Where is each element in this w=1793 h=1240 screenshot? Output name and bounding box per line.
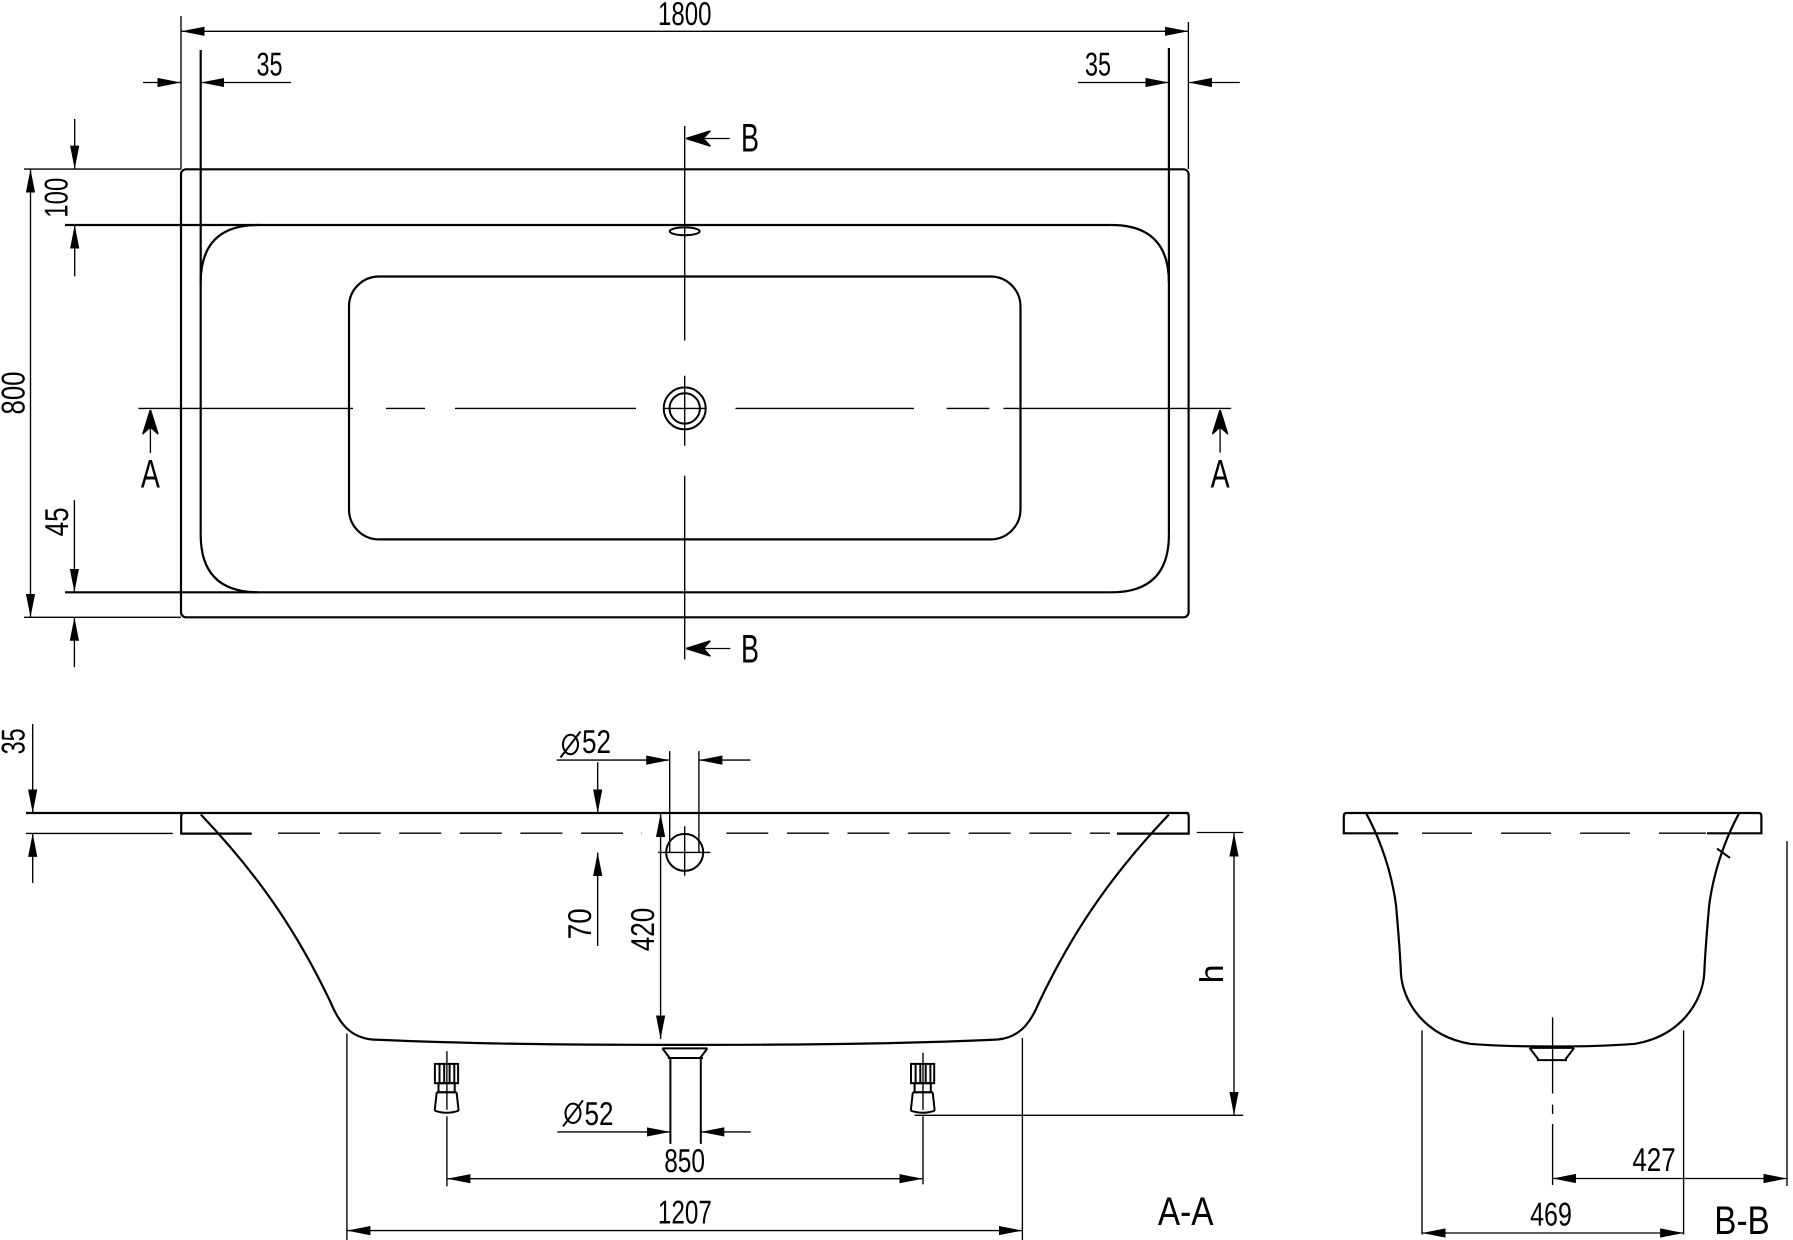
svg-text:52: 52 (582, 723, 611, 760)
svg-text:B: B (741, 117, 759, 161)
svg-text:35: 35 (257, 45, 283, 82)
svg-text:B-B: B-B (1714, 1199, 1770, 1240)
svg-text:850: 850 (664, 1142, 705, 1179)
svg-text:A-A: A-A (1158, 1190, 1214, 1234)
svg-text:35: 35 (0, 728, 32, 754)
svg-text:420: 420 (624, 908, 661, 952)
svg-text:427: 427 (1632, 1141, 1675, 1178)
svg-text:52: 52 (585, 1095, 614, 1132)
svg-text:1207: 1207 (658, 1194, 712, 1231)
svg-text:B: B (741, 628, 759, 672)
svg-text:100: 100 (38, 178, 75, 218)
svg-text:469: 469 (1530, 1196, 1572, 1233)
svg-text:800: 800 (0, 372, 32, 415)
svg-text:70: 70 (561, 908, 598, 939)
svg-text:45: 45 (38, 507, 75, 536)
svg-text:A: A (1211, 453, 1230, 497)
svg-text:A: A (141, 453, 160, 497)
svg-text:1800: 1800 (658, 0, 712, 32)
svg-text:h: h (1193, 964, 1230, 983)
svg-text:35: 35 (1085, 45, 1111, 82)
